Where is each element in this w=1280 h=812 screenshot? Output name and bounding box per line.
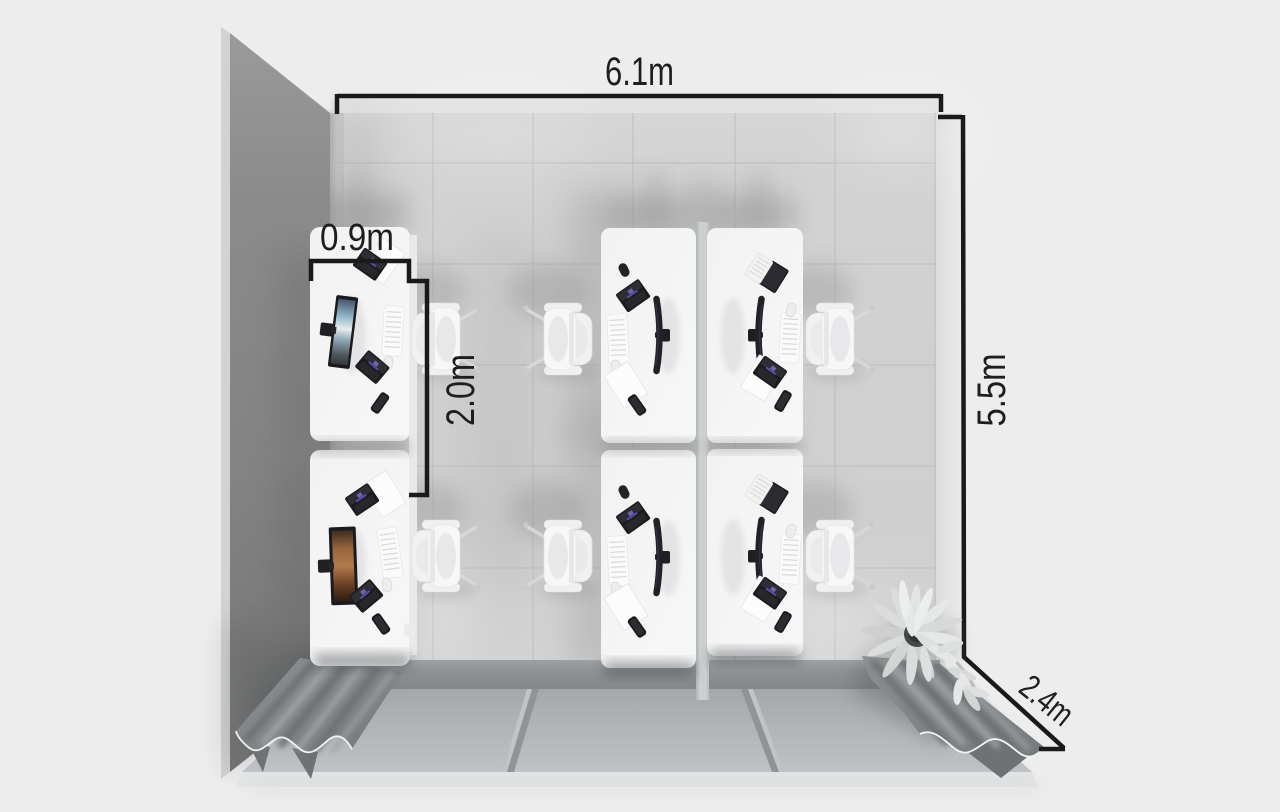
- svg-text:6.1m: 6.1m: [605, 50, 674, 94]
- svg-text:2.0m: 2.0m: [439, 354, 483, 426]
- svg-text:5.5m: 5.5m: [970, 354, 1014, 427]
- svg-text:0.9m: 0.9m: [320, 217, 394, 259]
